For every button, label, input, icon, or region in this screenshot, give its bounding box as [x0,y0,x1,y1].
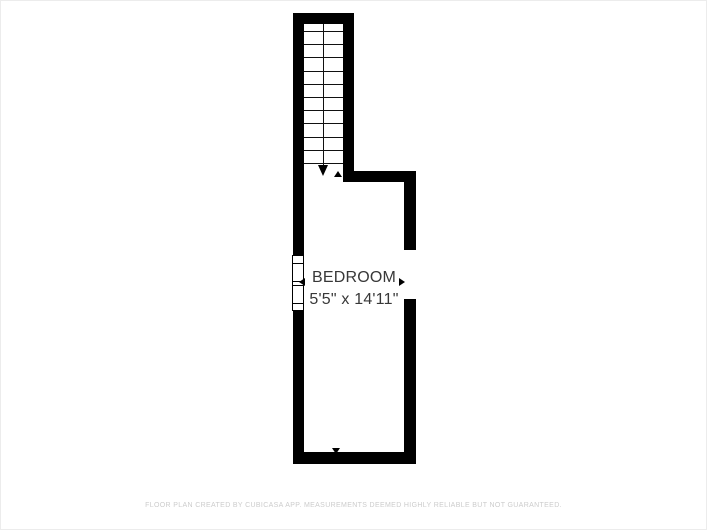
footer-disclaimer: FLOOR PLAN CREATED BY CUBICASA APP. MEAS… [1,502,706,509]
wall-left-lower [293,311,304,464]
window-frame-line [293,303,303,304]
window-frame-line [293,263,303,264]
opening-marker-down-icon [332,448,340,454]
wall-bottom [293,452,416,464]
stairs-down-arrow-icon [318,165,328,176]
wall-right-upper [404,171,416,250]
floorplan-page: BEDROOM 5'5" x 14'11" FLOOR PLAN CREATED… [0,0,707,530]
room-label: BEDROOM 5'5" x 14'11" [304,267,404,311]
staircase [304,24,343,174]
room-name: BEDROOM [304,267,404,289]
wall-right-lower [404,299,416,464]
wall-left-upper [293,13,304,255]
stair-centerline [323,24,324,166]
room-dimensions: 5'5" x 14'11" [304,289,404,311]
opening-marker-up-icon [334,171,342,177]
wall-stair-right [343,13,354,182]
